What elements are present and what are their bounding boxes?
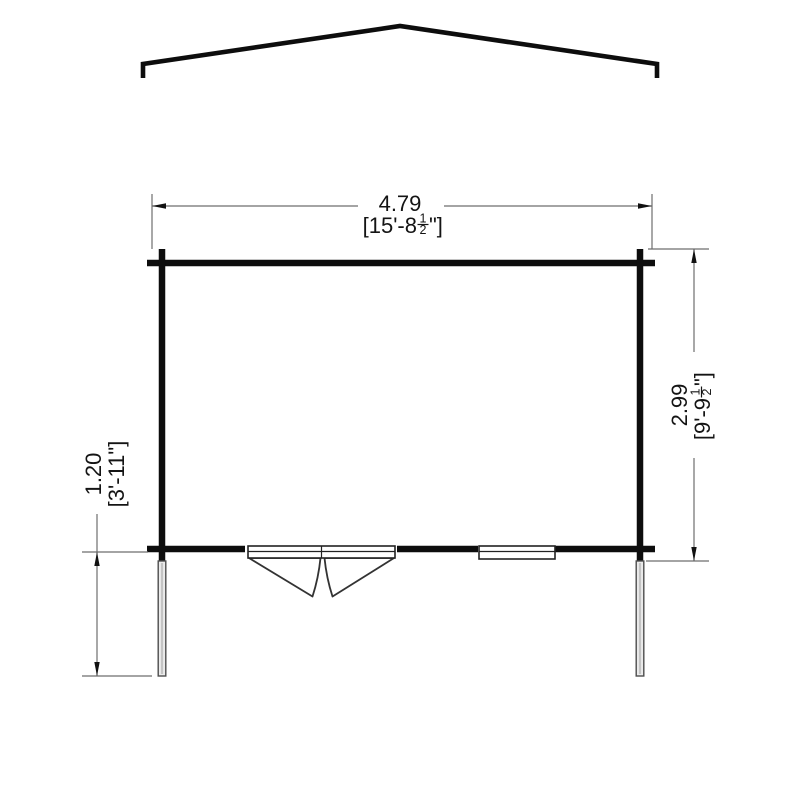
width-arrow-left [152,203,166,208]
overhang-imperial-text: [3'-11"] [104,441,129,508]
width-imperial-pre-text: [15'-8 [363,213,417,238]
roof-outline [143,26,657,78]
window [479,546,555,559]
width-label: 4.79 [15'-8 1 2 "] [363,191,443,238]
double-door [248,546,395,597]
door-leaf-left [249,558,321,597]
dimension-labels: 4.79 [15'-8 1 2 "] 2.99 [9'-9 1 2 "] 1.2… [81,191,715,507]
depth-fraction-denominator: 2 [700,388,714,395]
depth-imperial-post-text: "] [690,372,715,386]
width-fraction-denominator: 2 [420,223,427,237]
veranda-posts [158,561,644,676]
depth-label: 2.99 [9'-9 1 2 "] [667,372,715,440]
roof-apex-line [143,26,657,78]
width-imperial-post-text: "] [429,213,443,238]
floor-plan-canvas: 4.79 [15'-8 1 2 "] 2.99 [9'-9 1 2 "] 1.2… [0,0,800,800]
width-arrow-right [638,203,652,208]
dimension-lines [82,194,709,676]
door-leaf-right [325,558,395,597]
depth-arrow-down [691,547,696,561]
dimension-arrows [94,203,696,676]
depth-arrow-up [691,249,696,263]
floorplan-image: 4.79 [15'-8 1 2 "] 2.99 [9'-9 1 2 "] 1.2… [0,0,800,800]
overhang-arrow-down [94,662,99,676]
walls [147,249,655,561]
window-frame [479,546,555,559]
overhang-metric-text: 1.20 [81,453,106,496]
depth-imperial-pre-text: [9'-9 [690,398,715,440]
overhang-label: 1.20 [3'-11"] [81,441,129,508]
overhang-arrow-up [94,552,99,566]
